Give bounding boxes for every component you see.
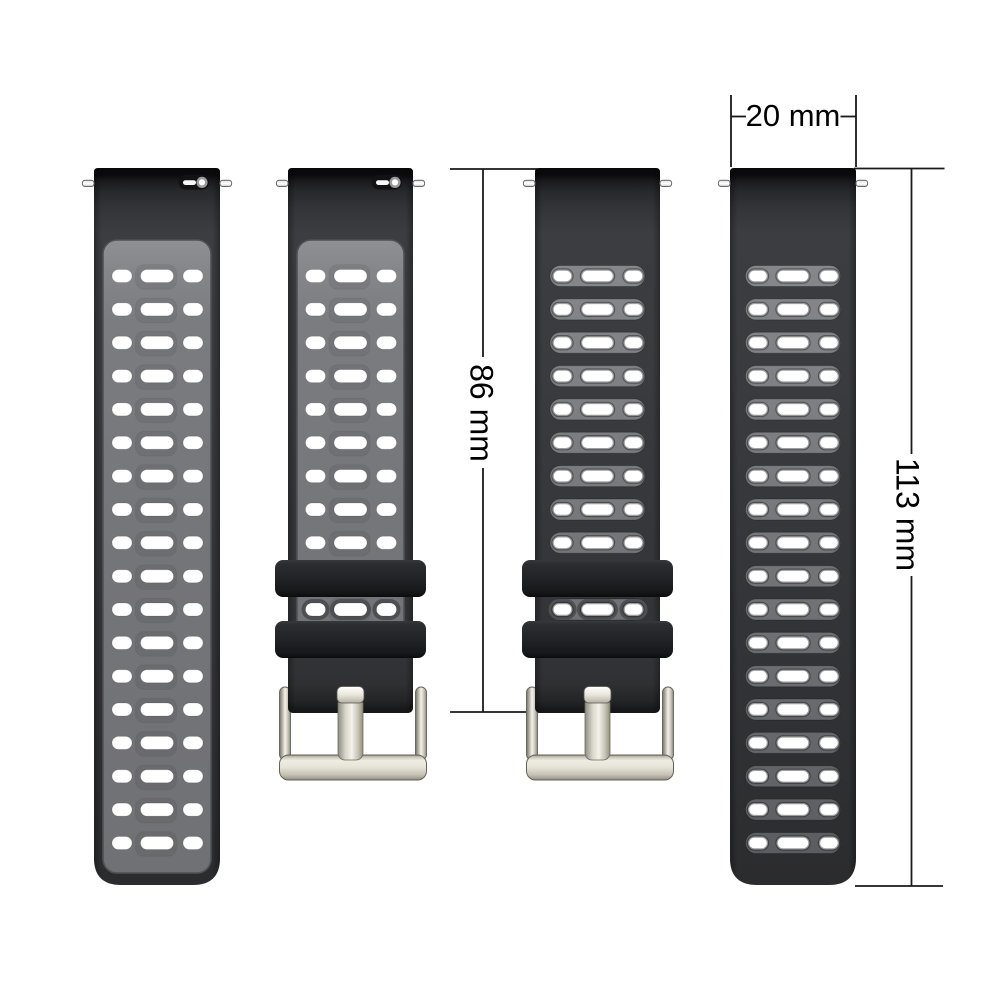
svg-text:113 mm: 113 mm	[890, 458, 926, 571]
svg-text:86 mm: 86 mm	[464, 364, 500, 462]
svg-text:20 mm: 20 mm	[746, 98, 841, 133]
